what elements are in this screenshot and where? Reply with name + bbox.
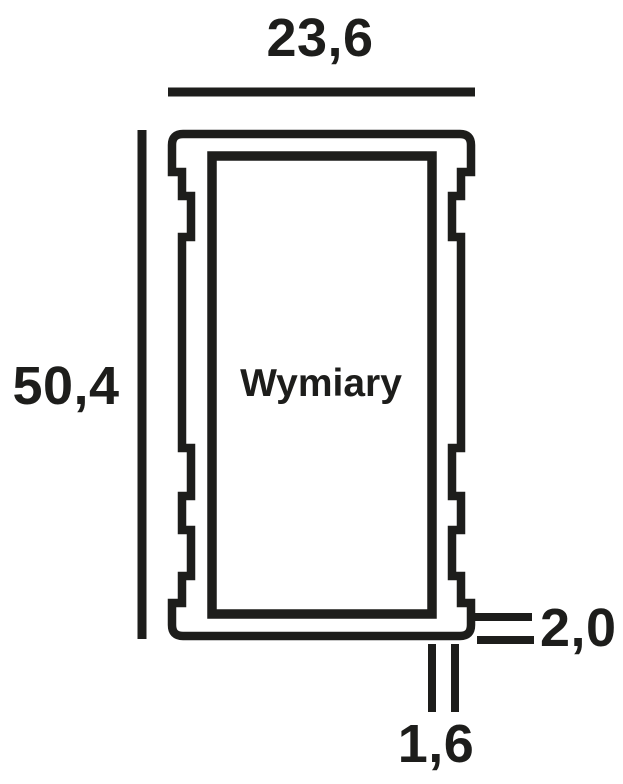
profile-name-label: Wymiary — [240, 364, 402, 403]
technical-drawing: 23,6 50,4 Wymiary 2,0 1,6 — [0, 0, 623, 784]
dim-wall-bottom-label: 2,0 — [540, 601, 617, 655]
dim-wall-side-label: 1,6 — [398, 717, 475, 771]
dim-height-label: 50,4 — [12, 359, 119, 413]
dim-width-label: 23,6 — [266, 11, 373, 65]
